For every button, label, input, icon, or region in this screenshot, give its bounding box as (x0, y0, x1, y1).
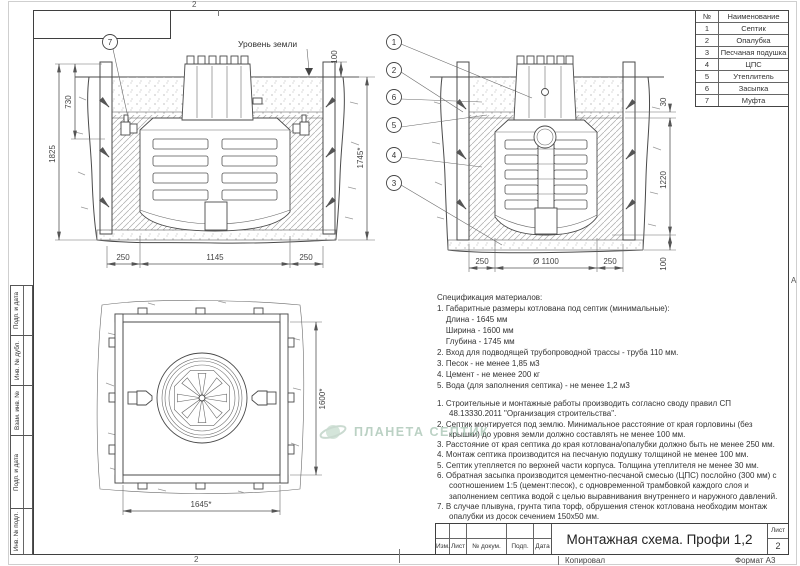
format-label: Формат А3 (735, 556, 775, 565)
top-view: 1600* 1645* (88, 293, 378, 533)
part-name: Муфта (719, 95, 788, 106)
spec-line: 4. Цемент - не менее 200 кг (437, 369, 771, 380)
parts-table-header: № Наименование (696, 11, 788, 22)
parts-table-row: 4 ЦПС (696, 58, 788, 70)
svg-text:730: 730 (64, 95, 73, 109)
parts-table-row: 5 Утеплитель (696, 70, 788, 82)
spec-line: 1. Габаритные размеры котлована под септ… (437, 303, 771, 314)
spec-line: 5. Вода (для заполнения септика) - не ме… (437, 380, 771, 391)
tb-col-podp: Подп. (507, 539, 534, 554)
parts-table-row: 7 Муфта (696, 94, 788, 106)
spec-line: 3. Песок - не менее 1,85 м3 (437, 358, 771, 369)
copied-label: Копировал (565, 556, 605, 565)
svg-text:100: 100 (659, 257, 668, 271)
stamp-label: Подп. и дата (14, 453, 21, 490)
spec-line: Глубина - 1745 мм (437, 336, 771, 347)
spec-title: Спецификация материалов: (437, 292, 771, 303)
left-stamp-column: Подп. и дата Инв. № дубл. Взам. инв. № П… (10, 285, 33, 555)
title-block: Изм. Лист № докум. Подп. Дата Монтажная … (435, 523, 789, 555)
part-name: Опалубка (719, 35, 788, 46)
part-number: 2 (696, 35, 719, 46)
title-block-revision-grid: Изм. Лист № докум. Подп. Дата (436, 524, 552, 554)
tb-col-izm: Изм. (436, 539, 450, 554)
stamp-cell: Инв. № подл. (11, 509, 32, 554)
spec-line: 2. Вход для подводящей трубопроводной тр… (437, 347, 771, 358)
svg-text:Ø 1100: Ø 1100 (533, 257, 559, 266)
parts-table-row: 6 Засыпка (696, 82, 788, 94)
tank-neck-front (182, 56, 262, 120)
part-number: 4 (696, 59, 719, 70)
svg-text:1645*: 1645* (191, 500, 212, 509)
note-line: 1. Строительные и монтажные работы произ… (437, 399, 781, 420)
part-number: 5 (696, 71, 719, 82)
stamp-cell: Инв. № дубл. (11, 336, 32, 386)
tb-empty-cell (436, 524, 450, 538)
spec-line: Длина - 1645 мм (437, 314, 771, 325)
note-line: 5. Септик утепляется по верхней части ко… (437, 461, 781, 471)
tb-empty-cell (450, 524, 467, 538)
svg-text:250: 250 (603, 257, 617, 266)
note-line: 4. Монтаж септика производится на песчан… (437, 450, 781, 460)
stamp-label: Инв. № подл. (14, 512, 21, 551)
part-number: 3 (696, 47, 719, 58)
septic-tank-side (495, 120, 597, 235)
stamp-cell: Подп. и дата (11, 436, 32, 509)
parts-table-row: 2 Опалубка (696, 34, 788, 46)
svg-text:Уровень земли: Уровень земли (238, 39, 297, 49)
note-line: 7. В случае плывуна, грунта типа торф, о… (437, 502, 781, 523)
bottom-margin-tick (558, 556, 559, 565)
tb-col-list: Лист (450, 539, 467, 554)
stamp-cell: Подп. и дата (11, 286, 32, 336)
svg-text:250: 250 (475, 257, 489, 266)
stamp-label: Инв. № дубл. (14, 341, 21, 380)
col-num-header: № (696, 11, 719, 22)
svg-text:6: 6 (392, 93, 397, 102)
svg-text:1745*: 1745* (356, 148, 365, 169)
tb-col-docnum: № докум. (467, 539, 507, 554)
col-name-header: Наименование (719, 11, 788, 22)
note-line: 6. Обратная засыпка производится цементн… (437, 471, 781, 502)
part-name: Утеплитель (719, 71, 788, 82)
fold-tick-bottom (399, 549, 400, 563)
svg-text:100: 100 (330, 50, 339, 64)
note-line: 2. Септик монтируется под землю. Минимал… (437, 420, 781, 441)
drawing-title: Монтажная схема. Профи 1,2 (552, 524, 767, 554)
parts-table-row: 1 Септик (696, 22, 788, 34)
svg-text:3: 3 (392, 179, 397, 188)
manhole-top (128, 353, 276, 443)
installation-notes: 1. Строительные и монтажные работы произ… (437, 399, 781, 523)
tb-col-data: Дата (534, 539, 551, 554)
tb-empty-cell (534, 524, 551, 538)
drawing-sheet: 2 2 А № Наименование 1 Септик 2 Опалубка… (0, 0, 800, 566)
svg-text:4: 4 (392, 151, 397, 160)
parts-table-row: 3 Песчаная подушка (696, 46, 788, 58)
sheet-label: Лист (768, 524, 788, 539)
zone-mark-top: 2 (192, 0, 196, 9)
svg-text:250: 250 (116, 253, 130, 262)
spec-line: Ширина - 1600 мм (437, 325, 771, 336)
svg-text:1600*: 1600* (318, 389, 327, 410)
part-name: Песчаная подушка (719, 47, 788, 58)
part-number: 7 (696, 95, 719, 106)
svg-text:1220: 1220 (659, 171, 668, 189)
front-section-view: 7 Уровень земли 1825 730 100 1745* 250 1… (45, 12, 385, 292)
side-section-view: 1 2 6 5 4 3 30 1220 100 250 Ø 1100 250 (382, 12, 692, 280)
coupling-left-top (128, 391, 152, 405)
septic-tank-front (121, 115, 309, 231)
svg-text:250: 250 (299, 253, 313, 262)
tank-neck-side (514, 56, 576, 120)
spec-lines: 1. Габаритные размеры котлована под септ… (437, 303, 771, 391)
note-line: 3. Расстояние от края септика до края ко… (437, 440, 781, 450)
svg-text:1: 1 (392, 38, 397, 47)
part-name: Септик (719, 23, 788, 34)
svg-text:1145: 1145 (206, 253, 224, 262)
part-number: 1 (696, 23, 719, 34)
sheet-number-box: Лист 2 (767, 524, 788, 554)
materials-specification: Спецификация материалов: 1. Габаритные р… (437, 292, 771, 391)
svg-text:7: 7 (108, 38, 113, 47)
zone-mark-right: А (791, 276, 796, 285)
coupling-right-top (252, 391, 276, 405)
parts-table: № Наименование 1 Септик 2 Опалубка 3 Пес… (695, 10, 789, 107)
svg-text:30: 30 (659, 97, 668, 106)
stamp-label: Взам. инв. № (14, 391, 21, 430)
svg-text:1825: 1825 (48, 145, 57, 163)
sheet-number: 2 (768, 539, 788, 554)
svg-text:2: 2 (392, 66, 397, 75)
part-number: 6 (696, 83, 719, 94)
svg-text:5: 5 (392, 121, 397, 130)
tb-empty-cell (467, 524, 507, 538)
stamp-cell: Взам. инв. № (11, 386, 32, 436)
stamp-label: Подп. и дата (14, 292, 21, 329)
tb-empty-cell (507, 524, 534, 538)
part-name: Засыпка (719, 83, 788, 94)
zone-mark-bottom: 2 (194, 555, 198, 564)
part-name: ЦПС (719, 59, 788, 70)
